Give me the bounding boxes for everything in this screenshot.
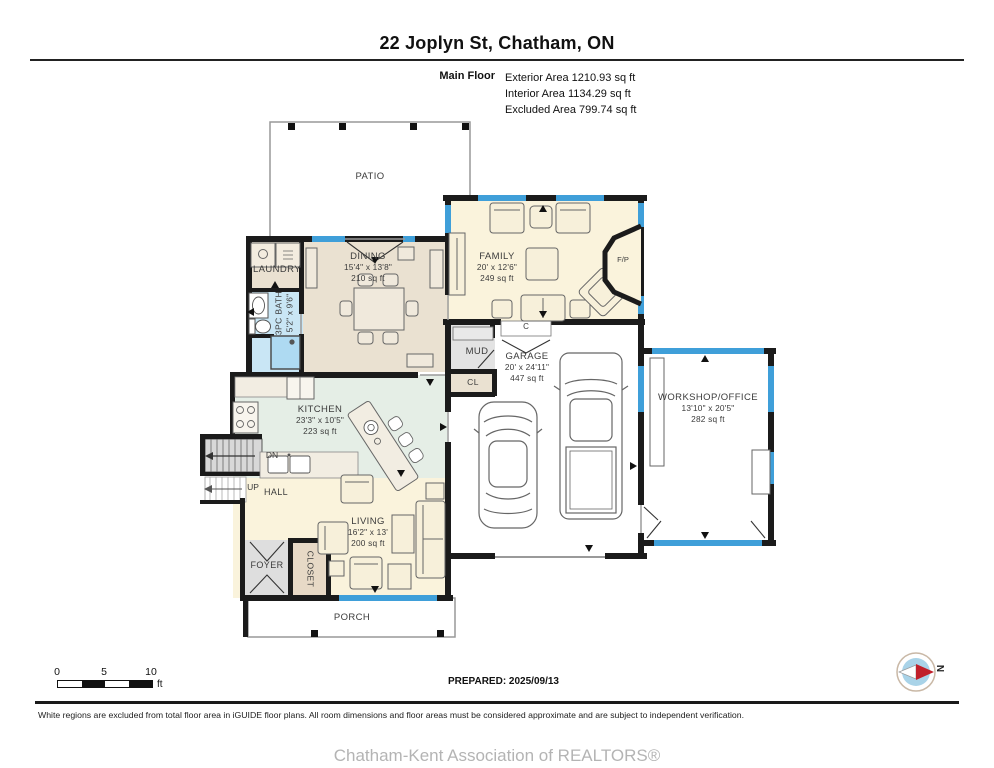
compass-north-label: N [934,665,945,672]
scale-tick-5: 5 [101,666,107,678]
room-label-dining: DINING 15'4" x 13'8" 210 sq ft [344,251,392,283]
room-label-workshop: WORKSHOP/OFFICE 13'10" x 20'5" 282 sq ft [658,392,758,424]
room-name: LAUNDRY [253,264,301,275]
scale-tick-0: 0 [54,666,60,678]
room-name: LIVING [348,516,388,527]
car-truck [554,353,628,519]
room-label-laundry: LAUNDRY [253,264,301,275]
room-label-kitchen: KITCHEN 23'3" x 10'5" 223 sq ft [296,404,344,436]
room-name: CL [467,377,479,388]
room-label-porch: PORCH [334,612,370,623]
room-name: HALL [264,487,288,498]
room-dims: 5'2" x 9'6" [284,291,295,335]
page-title: 22 Joplyn St, Chatham, ON [0,33,994,54]
scale-bar-segments [57,680,153,688]
stairs-up [204,477,246,502]
exterior-area: Exterior Area 1210.93 sq ft [505,70,636,86]
room-name: PORCH [334,612,370,623]
stairs-dn-label: DN [266,450,278,460]
room-name: FAMILY [477,251,517,262]
interior-area: Interior Area 1134.29 sq ft [505,86,636,102]
room-label-family: FAMILY 20' x 12'6" 249 sq ft [477,251,517,283]
room-name: GARAGE [505,351,549,362]
room-name: 3PC BATH [273,291,284,335]
room-area: 282 sq ft [658,414,758,425]
floorplan-svg [0,0,994,768]
scale-segment [105,681,129,687]
area-stats: Exterior Area 1210.93 sq ft Interior Are… [505,70,636,118]
scale-segment [58,681,82,687]
header-divider [30,59,964,61]
scale-tick-10: 10 [145,666,157,678]
room-area: 447 sq ft [505,373,549,384]
room-label-garage: GARAGE 20' x 24'11" 447 sq ft [505,351,549,383]
room-label-hall: HALL [264,487,288,498]
room-name: WORKSHOP/OFFICE [658,392,758,403]
room-label-closet: CLOSET [305,551,316,587]
room-label-cl: CL [467,377,479,388]
room-area: 210 sq ft [344,273,392,284]
mud-bench [453,327,493,340]
scale-segment [82,681,106,687]
room-name: FOYER [250,560,283,571]
room-label-mud: MUD [466,346,489,357]
room-label-living: LIVING 16'2" x 13' 200 sq ft [348,516,388,548]
room-name: CLOSET [305,551,316,587]
scale-bar: 0 5 10 ft [53,666,223,692]
room-area: 249 sq ft [477,273,517,284]
stairs-up-label: UP [247,482,259,492]
room-dims: 16'2" x 13' [348,527,388,538]
floorplan-page: 22 Joplyn St, Chatham, ON Main Floor Ext… [0,0,994,768]
room-area: 200 sq ft [348,538,388,549]
room-name: DINING [344,251,392,262]
stairs-down [205,439,262,472]
room-label-fp: F/P [617,255,629,264]
room-name: MUD [466,346,489,357]
room-dims: 20' x 24'11" [505,362,549,373]
scale-unit: ft [157,679,163,690]
prepared-date: PREPARED: 2025/09/13 [448,676,559,687]
room-dims: 20' x 12'6" [477,262,517,273]
room-name: KITCHEN [296,404,344,415]
room-label-bath: 3PC BATH 5'2" x 9'6" [273,291,295,335]
disclaimer-text: White regions are excluded from total fl… [38,710,958,720]
footer-divider [35,701,959,704]
room-dims: 15'4" x 13'8" [344,262,392,273]
association-footer: Chatham-Kent Association of REALTORS® [0,746,994,766]
room-label-foyer: FOYER [250,560,283,571]
room-name: PATIO [355,171,384,182]
room-dims: 13'10" x 20'5" [658,403,758,414]
room-dims: 23'3" x 10'5" [296,415,344,426]
room-label-c: C [523,322,529,331]
floor-label: Main Floor [370,70,495,82]
room-area: 223 sq ft [296,426,344,437]
excluded-area: Excluded Area 799.74 sq ft [505,102,636,118]
room-label-patio: PATIO [355,171,384,182]
scale-segment [129,681,153,687]
